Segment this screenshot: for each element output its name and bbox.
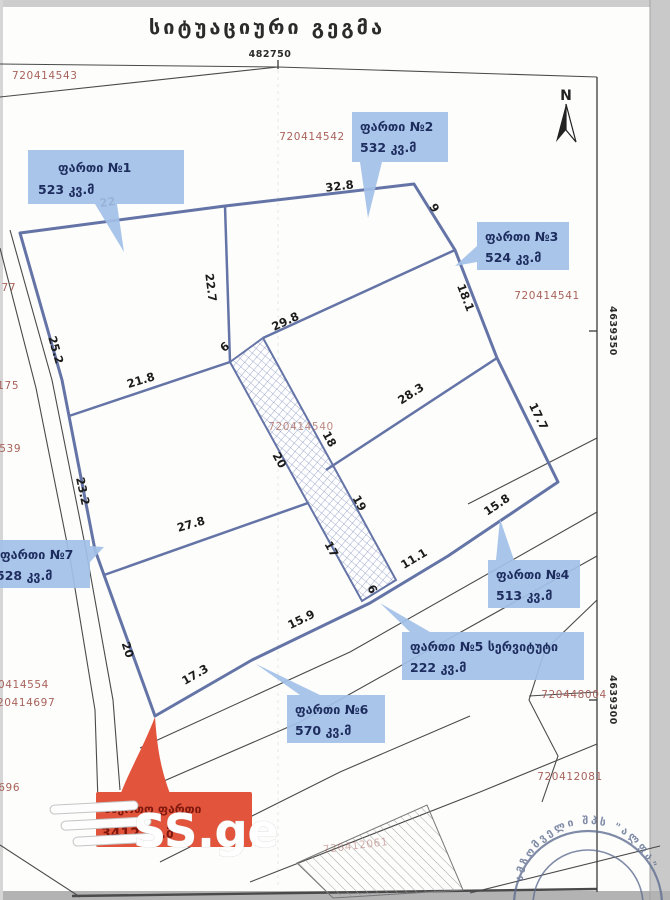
cadastral-number-partial: 20414697 [0,697,55,709]
stamp-text: ამზომველი შპს "ალფა" [514,815,660,882]
cadastral-number-partial: 4177 [0,282,16,294]
measurement-11-1: 11.1 [398,545,430,572]
cadastral-number: 720414543 [12,70,78,82]
parcel-label: ფართი №3 [485,229,558,244]
parcel-1-callout: ფართი №1 523 კვ.მ [28,150,184,252]
measurement-9: 9 [426,201,442,215]
situational-plan-map: სიტუაციური გეგმა 482750 4639350 4639300 … [0,0,670,900]
parcel-6-callout: ფართი №6 570 კვ.მ [256,664,385,743]
measurement-29-8: 29.8 [269,309,301,334]
parcel-area: 532 კვ.მ [360,140,416,155]
parcel-area: 523 კვ.მ [38,182,94,197]
parcel-label: ფართი №5 სერვიტუტი [410,639,558,654]
cadastral-number: 720412081 [537,771,603,783]
cadastral-number: 720414540 [268,421,334,433]
stamp: ამზომველი შპს "ალფა" [514,815,662,900]
measurement-28-3: 28.3 [395,380,426,407]
cadastral-number: 720414541 [514,290,580,302]
northing-label-lower: 4639300 [607,675,618,725]
parcel-label: ფართი №1 [58,160,131,175]
parcel-label: ფართი №2 [360,119,433,134]
north-arrow-label: N [560,88,572,104]
servitude-strip [230,338,396,601]
measurement-22-7: 22.7 [202,273,219,303]
page-title: სიტუაციური გეგმა [149,15,385,39]
building-footprint [297,805,463,898]
parcel-label: ფართი №6 [295,702,369,717]
parcel-2-callout: ფართი №2 532 კვ.მ [352,112,448,218]
cadastral-number-partial: 0414554 [0,679,49,691]
ssge-logo: SS.ge [133,804,279,858]
parcel-area: 222 კვ.მ [410,660,466,675]
parcel-area: 513 კვ.მ [496,588,552,603]
ssge-watermark: SS.ge [50,801,279,858]
parcel-5-callout: ფართი №5 სერვიტუტი 222 კვ.მ [380,603,584,680]
parcel-3-callout: ფართი №3 524 კვ.მ [455,222,569,270]
measurement-15-9: 15.9 [285,607,317,632]
parcel-label: ფართი №7 [0,547,73,562]
parcel-label: ფართი №4 [496,567,570,582]
measurement-25-2: 25.2 [45,334,66,365]
parcel-7-callout: ფართი №7 528 კვ.მ [0,540,104,588]
cadastral-number-partial: 4696 [0,782,20,794]
north-arrow: N [556,88,576,142]
cadastral-number-partial: 4539 [0,443,21,455]
cadastral-number: 720414542 [279,131,345,143]
parcel-4-callout: ფართი №4 513 კვ.მ [488,519,580,608]
measurement-18-1: 18.1 [454,282,477,314]
parcel-area: 524 კვ.მ [485,250,541,265]
easting-label: 482750 [249,49,292,60]
northing-label-upper: 4639350 [607,306,618,356]
cadastral-number: 720448004 [541,689,607,701]
svg-text:ამზომველი შპს "ალფა": ამზომველი შპს "ალფა" [514,815,660,882]
situational-plan-page: სიტუაციური გეგმა 482750 4639350 4639300 … [0,0,670,900]
parcel-area: 528 კვ.მ [0,568,52,583]
measurement-17-3: 17.3 [179,661,211,687]
parcel-area: 570 კვ.მ [295,723,351,738]
measurement-27-8: 27.8 [175,514,206,535]
cadastral-number-partial: 4175 [0,380,19,392]
